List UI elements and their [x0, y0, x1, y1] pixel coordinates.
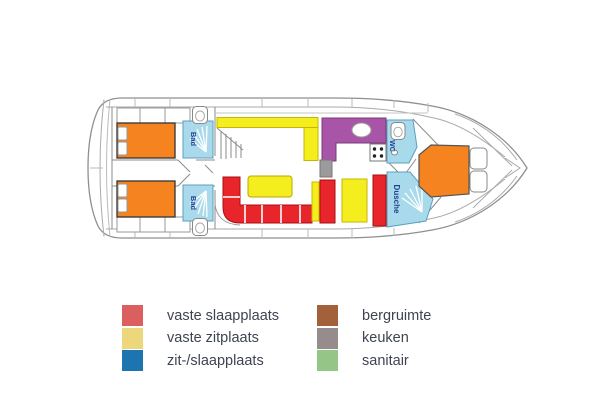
legend-label: keuken [338, 330, 409, 346]
toilet-icon [193, 107, 208, 124]
bad-label-top: Bad [189, 132, 198, 147]
legend-label: vaste zitplaats [143, 330, 259, 346]
legend-swatch-sanitair [317, 350, 338, 371]
legend-item: vaste slaapplaats [122, 305, 279, 326]
legend-swatch-vaste-zitplaats [122, 328, 143, 349]
aft-cabin-bottom [117, 181, 175, 217]
legend-label: vaste slaapplaats [143, 308, 279, 324]
toilet-icon [391, 123, 405, 140]
legend-label: bergruimte [338, 308, 431, 324]
legend-column-right: bergruimte keuken sanitair [317, 305, 431, 373]
v-berth-bed [419, 145, 469, 197]
stove-icon [370, 144, 386, 161]
bad-label-bottom: Bad [189, 196, 198, 211]
dinette-table [248, 176, 292, 197]
pillow [470, 148, 487, 169]
pillow [118, 127, 127, 140]
pillar [320, 160, 332, 177]
seat-block-yellow [342, 179, 367, 222]
pillow [470, 171, 487, 192]
boat-floorplan: Bad Bad [0, 0, 600, 260]
legend-swatch-keuken [317, 328, 338, 349]
legend-item: keuken [317, 328, 431, 349]
seat-block-red-2 [373, 175, 386, 226]
pillow [118, 142, 127, 155]
legend-swatch-bergruimte [317, 305, 338, 326]
seat-block-red [320, 180, 335, 223]
legend-swatch-vaste-slaapplaats [122, 305, 143, 326]
wc-room: WC [387, 120, 417, 163]
legend-column-left: vaste slaapplaats vaste zitplaats zit-/s… [122, 305, 279, 373]
legend-label: zit-/slaapplaats [143, 353, 264, 369]
toilet-icon [193, 219, 208, 236]
legend-label: sanitair [338, 353, 409, 369]
legend-item: zit-/slaapplaats [122, 350, 279, 371]
sink-icon [352, 123, 371, 137]
pillow [118, 199, 127, 212]
legend-item: vaste zitplaats [122, 328, 279, 349]
legend-swatch-zit-slaapplaats [122, 350, 143, 371]
legend-item: bergruimte [317, 305, 431, 326]
seat-strip-yellow [312, 182, 319, 221]
boat-layout-page: Bad Bad [0, 0, 600, 400]
aft-cabin-top [117, 123, 175, 158]
dusche-label: Dusche [392, 185, 401, 214]
legend-item: sanitair [317, 350, 431, 371]
pillow [118, 184, 127, 197]
bow-cabin [419, 145, 487, 197]
wc-label: WC [388, 140, 395, 152]
